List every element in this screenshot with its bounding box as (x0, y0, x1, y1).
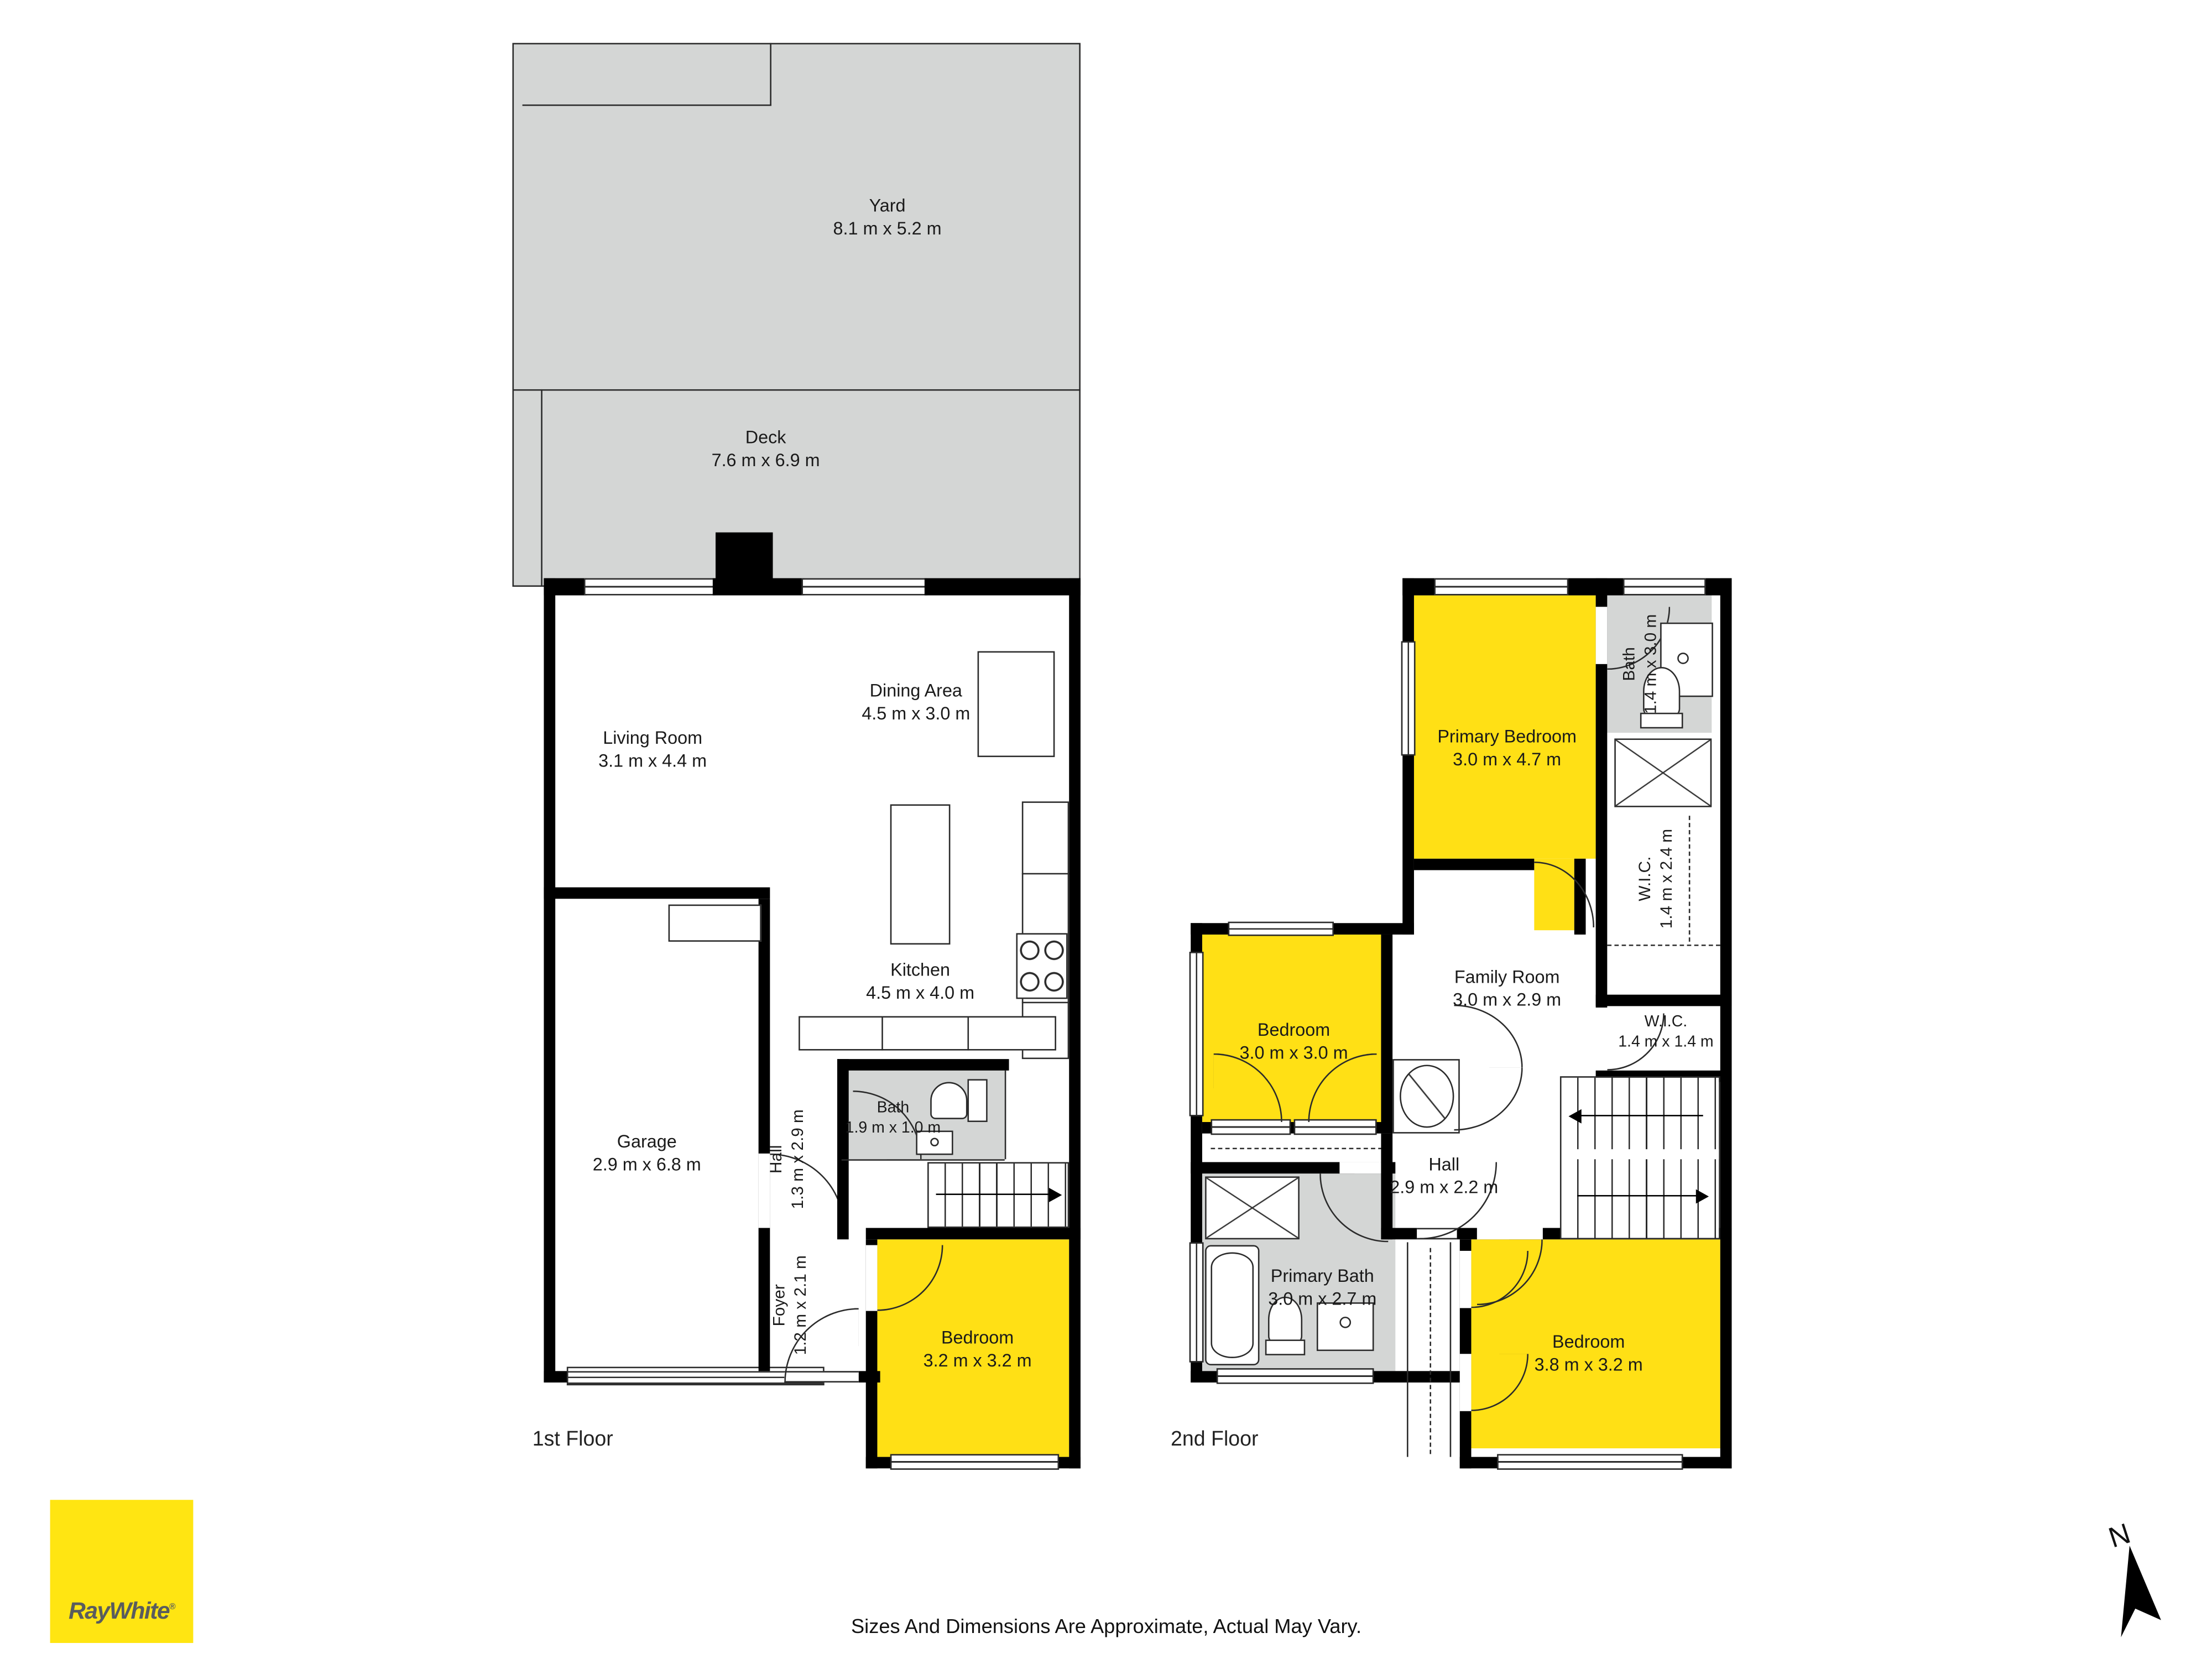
room-dims: 1.4 m x 3.0 m (1641, 614, 1663, 714)
dining-sideboard (978, 651, 1055, 758)
stairs-arrow-icon (1049, 1188, 1062, 1202)
window (1190, 1242, 1204, 1362)
room-dims: 2.9 m x 6.8 m (593, 1154, 701, 1177)
room-label-garage: Garage 2.9 m x 6.8 m (593, 1130, 701, 1177)
wall (866, 1228, 1081, 1240)
closet-rail (1607, 945, 1720, 946)
door-arc (1454, 1005, 1522, 1068)
room-name: Bath (1620, 614, 1642, 714)
registered-mark: ® (169, 1604, 175, 1613)
room-dims: 2.9 m x 2.2 m (1390, 1176, 1498, 1199)
closet-line (1407, 1242, 1408, 1457)
shower-icon (1614, 738, 1712, 807)
window (1190, 952, 1204, 1117)
deck-pillar (716, 533, 773, 584)
kitchen-island (890, 804, 951, 945)
window (1401, 641, 1416, 755)
room-name: Bedroom (924, 1326, 1032, 1349)
room-dims: 3.0 m x 2.7 m (1268, 1288, 1376, 1311)
room-name: Bedroom (1535, 1331, 1643, 1354)
window (1217, 1368, 1374, 1384)
yard-fence-line-h (523, 105, 771, 106)
deck-edge-line (541, 389, 542, 587)
room-label-primary-bedroom: Primary Bedroom 3.0 m x 4.7 m (1437, 725, 1577, 771)
room-name: Hall (767, 1109, 789, 1209)
door-gap (866, 1245, 878, 1311)
room-dims: 3.0 m x 4.7 m (1437, 749, 1577, 772)
room-label-wic-2: W.I.C. 1.4 m x 1.4 m (1618, 1014, 1713, 1053)
room-label-deck: Deck 7.6 m x 6.9 m (712, 426, 820, 473)
window (1623, 578, 1706, 596)
wall (544, 578, 555, 1383)
sink-faucet-icon (1677, 653, 1689, 664)
window (1434, 578, 1568, 596)
wall (837, 1059, 849, 1239)
room-dims: 3.2 m x 3.2 m (924, 1349, 1032, 1373)
room-name: Garage (593, 1130, 701, 1154)
door-gap (1460, 1354, 1472, 1411)
room-label-living-room: Living Room 3.1 m x 4.4 m (598, 727, 707, 773)
room-dims: 4.5 m x 4.0 m (866, 982, 974, 1005)
water-heater-bolt-icon (1408, 1073, 1446, 1119)
closet-rail (1430, 1248, 1431, 1454)
window (1497, 1454, 1683, 1469)
disclaimer-text: Sizes And Dimensions Are Approximate, Ac… (0, 1614, 2212, 1637)
room-name: Deck (712, 426, 820, 450)
north-arrow-shape (2121, 1546, 2161, 1637)
wall (544, 888, 770, 899)
stairs-arrow-icon (1696, 1190, 1709, 1204)
room-dims: 1.2 m x 2.1 m (791, 1255, 813, 1355)
wall (1596, 995, 1732, 1006)
counter-line (1022, 1002, 1069, 1004)
toilet-tank-icon (1265, 1339, 1305, 1355)
floor-label-1: 1st Floor (533, 1428, 613, 1451)
room-label-wic-1: W.I.C. 1.4 m x 2.4 m (1636, 829, 1678, 928)
room-label-bedroom-1: Bedroom 3.2 m x 3.2 m (924, 1326, 1032, 1373)
room-label-bath-2: Bath 1.4 m x 3.0 m (1620, 614, 1663, 714)
shower-icon (1205, 1176, 1300, 1239)
room-name: Foyer (770, 1255, 792, 1355)
wall (837, 1059, 1009, 1071)
room-label-hall-2: Hall 2.9 m x 2.2 m (1390, 1153, 1498, 1199)
door-gap (1477, 1228, 1543, 1240)
stairs-direction-line (1577, 1195, 1697, 1197)
north-arrow-icon: N (2072, 1503, 2201, 1646)
room-dims: 8.1 m x 5.2 m (833, 217, 942, 241)
counter-line (967, 1016, 969, 1050)
room-dims: 3.0 m x 2.9 m (1453, 989, 1561, 1012)
wall (1414, 859, 1534, 870)
wall (1402, 578, 1414, 935)
window (890, 1454, 1059, 1469)
stairs-arrow-icon (1568, 1109, 1581, 1124)
room-label-bedroom-small: Bedroom 3.0 m x 3.0 m (1240, 1019, 1348, 1065)
room-dims: 1.9 m x 1.0 m (846, 1119, 941, 1139)
wall (925, 578, 1081, 596)
wall (1381, 935, 1392, 1134)
yard-deck-area (513, 43, 1081, 587)
counter-line (881, 1016, 883, 1050)
bath1-edge (1005, 1071, 1006, 1159)
floorplan-page: Yard 8.1 m x 5.2 m Deck 7.6 m x 6.9 m Li… (0, 0, 2212, 1658)
bathtub-icon (1205, 1245, 1259, 1365)
closet-rail (1689, 816, 1691, 942)
sliding-door-window (584, 578, 716, 596)
room-label-family-room: Family Room 3.0 m x 2.9 m (1453, 966, 1561, 1012)
room-label-bedroom-large: Bedroom 3.8 m x 3.2 m (1535, 1331, 1643, 1377)
room-label-hall-1: Hall 1.3 m x 2.9 m (767, 1109, 810, 1209)
room-label-primary-bath: Primary Bath 3.0 m x 2.7 m (1268, 1265, 1376, 1311)
room-name: Bath (846, 1099, 941, 1119)
room-dims: 1.3 m x 2.9 m (789, 1109, 810, 1209)
room-name: Family Room (1453, 966, 1561, 989)
stairs-divider (1562, 1149, 1719, 1159)
wall (1069, 578, 1081, 1469)
stairs-direction-line (936, 1193, 1051, 1195)
wall (713, 578, 805, 596)
kitchen-lower-counter (799, 1016, 1056, 1050)
garage-cabinet (669, 905, 761, 942)
compass: N (2072, 1503, 2201, 1646)
yard-fence-line-v (770, 43, 771, 106)
room-dims: 3.0 m x 3.0 m (1240, 1042, 1348, 1065)
room-label-foyer: Foyer 1.2 m x 2.1 m (770, 1255, 813, 1355)
door-arc (1454, 1068, 1522, 1131)
room-name: W.I.C. (1636, 829, 1657, 928)
toilet-tank-icon (967, 1079, 987, 1122)
window (1228, 922, 1334, 936)
floor-label-2: 2nd Floor (1171, 1428, 1259, 1451)
room-dims: 7.6 m x 6.9 m (712, 450, 820, 473)
room-dims: 1.4 m x 2.4 m (1657, 829, 1679, 928)
stove-icon (1016, 933, 1067, 999)
room-dims: 3.8 m x 3.2 m (1535, 1354, 1643, 1377)
counter-line (1022, 873, 1069, 875)
room-label-bath-1: Bath 1.9 m x 1.0 m (846, 1099, 941, 1139)
door-gap (1460, 1251, 1472, 1308)
toilet-tank-icon (1640, 713, 1683, 728)
room-name: Primary Bath (1268, 1265, 1376, 1288)
room-name: W.I.C. (1618, 1014, 1713, 1034)
room-name: Living Room (598, 727, 707, 750)
stairs-direction-line (1580, 1115, 1703, 1117)
yard-deck-divider (513, 389, 1081, 391)
room-label-kitchen: Kitchen 4.5 m x 4.0 m (866, 958, 974, 1005)
door-gap (1596, 1013, 1608, 1071)
room-name: Yard (833, 194, 942, 217)
wall (1720, 578, 1732, 1469)
room-name: Primary Bedroom (1437, 725, 1577, 748)
closet-rail (1211, 1148, 1383, 1150)
sink-faucet-icon (1339, 1317, 1351, 1328)
sink-faucet-icon (930, 1138, 939, 1146)
room-dims: 3.1 m x 4.4 m (598, 750, 707, 773)
bath1-edge (842, 1159, 1005, 1161)
sliding-door-window (801, 578, 927, 596)
room-name: Dining Area (862, 680, 970, 703)
room-label-yard: Yard 8.1 m x 5.2 m (833, 194, 942, 241)
room-dims: 1.4 m x 1.4 m (1618, 1034, 1713, 1053)
room-label-dining-area: Dining Area 4.5 m x 3.0 m (862, 680, 970, 726)
room-dims: 4.5 m x 3.0 m (862, 703, 970, 726)
room-name: Kitchen (866, 958, 974, 982)
room-name: Bedroom (1240, 1019, 1348, 1042)
door-gap (1596, 607, 1608, 664)
closet-line (1450, 1242, 1452, 1457)
room-name: Hall (1390, 1153, 1498, 1176)
